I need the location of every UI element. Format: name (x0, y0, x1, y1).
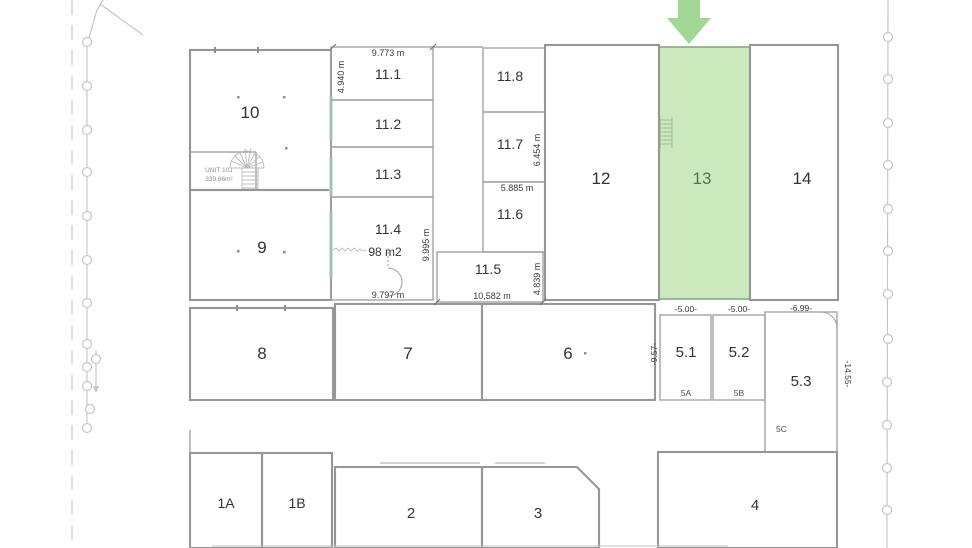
room-2: 2 (335, 463, 482, 548)
room-14-label: 14 (793, 169, 812, 188)
room-11-3-label: 11.3 (375, 166, 401, 182)
room-11-3: 11.3 (331, 147, 433, 197)
room-8: 8 (190, 308, 333, 400)
room-11-4-area: 98 m2 (368, 245, 402, 259)
floor-plan-canvas: 13 10 UNIT 101 339.66m² 9 11.1 11.2 11.3 (0, 0, 972, 548)
unit-101-name: UNIT 101 (205, 167, 233, 174)
dim-height-11-1: 4.940 m (336, 61, 346, 94)
room-8-label: 8 (257, 344, 266, 363)
room-6: 6 (482, 304, 655, 400)
room-3: 3 (482, 463, 599, 548)
room-9-label: 9 (257, 238, 266, 257)
room-11-5-label: 11.5 (475, 261, 501, 277)
door-swing-icon (821, 312, 837, 328)
room-5b-label: 5B (734, 388, 745, 398)
dim-width-11-6: 5.885 m (501, 183, 534, 193)
room-5-1: 5.1 5A (660, 315, 711, 400)
room-13: 13 (659, 47, 750, 299)
room-11-2-label: 11.2 (375, 116, 401, 132)
dim-width-5-2: -5.00- (728, 304, 750, 314)
highlight-arrow-icon (667, 0, 711, 44)
room-9: 9 (190, 190, 331, 300)
room-11-4-label: 11.4 (375, 221, 401, 237)
room-11-6-label: 11.6 (497, 206, 523, 222)
room-11-8: 11.8 (483, 48, 545, 112)
dim-height-5-3: -14.55- (843, 361, 853, 388)
room-5-1-label: 5.1 (676, 344, 697, 361)
dim-height-11-col: 9.995 m (421, 229, 431, 262)
room-13-label: 13 (693, 169, 712, 188)
room-5-3-label: 5.3 (791, 373, 812, 390)
room-7-label: 7 (403, 344, 412, 363)
room-unit-101: UNIT 101 339.66m² (190, 148, 264, 190)
dim-width-5-3: -6.99- (790, 303, 812, 313)
dimension-labels: 9.773 m 4.940 m 9.797 m 9.995 m 6.454 m … (336, 48, 853, 388)
boundary-post-markers (83, 38, 101, 433)
dim-height-11-5: 4.839 m (532, 263, 542, 296)
dim-width-11-5: 10,582 m (473, 291, 511, 301)
room-4-label: 4 (751, 497, 759, 514)
room-3-label: 3 (534, 505, 542, 522)
room-11-2: 11.2 (331, 100, 433, 147)
room-11-8-label: 11.8 (497, 68, 523, 84)
room-1a: 1A (190, 453, 262, 548)
room-12: 12 (545, 45, 659, 300)
dim-height-11-7: 6.454 m (532, 134, 542, 167)
room-4: 4 (658, 452, 837, 548)
room-5-2-label: 5.2 (729, 344, 750, 361)
room-1a-label: 1A (217, 495, 235, 511)
room-1b-label: 1B (288, 495, 305, 511)
room-6-label: 6 (563, 344, 572, 363)
room-2-label: 2 (407, 505, 415, 522)
room-7: 7 (335, 304, 482, 400)
site-boundary-left (72, 0, 143, 548)
dim-width-11-4: 9.797 m (372, 290, 405, 300)
dim-height-5-1: -9.57- (649, 343, 659, 365)
room-10-label: 10 (241, 103, 260, 122)
room-5a-label: 5A (681, 388, 692, 398)
room-5c-label: 5C (776, 424, 787, 434)
dim-width-11-1: 9.773 m (372, 48, 405, 58)
room-1b: 1B (262, 453, 332, 548)
spiral-stair-icon (230, 148, 264, 190)
room-11-7-label: 11.7 (497, 136, 523, 152)
break-line (333, 248, 367, 251)
floor-plan: 13 10 UNIT 101 339.66m² 9 11.1 11.2 11.3 (0, 0, 972, 548)
room-5-2: 5.2 5B (713, 315, 765, 400)
room-11-1-label: 11.1 (375, 66, 401, 82)
unit-101-area: 339.66m² (205, 176, 233, 183)
room-5-3: 5.3 5C (765, 312, 837, 452)
site-boundary-right (883, 0, 893, 548)
room-11-4: 11.4 98 m2 (331, 197, 433, 300)
room-12-label: 12 (592, 169, 611, 188)
room-14: 14 (750, 45, 838, 300)
dim-width-5-1: -5.00- (675, 304, 697, 314)
